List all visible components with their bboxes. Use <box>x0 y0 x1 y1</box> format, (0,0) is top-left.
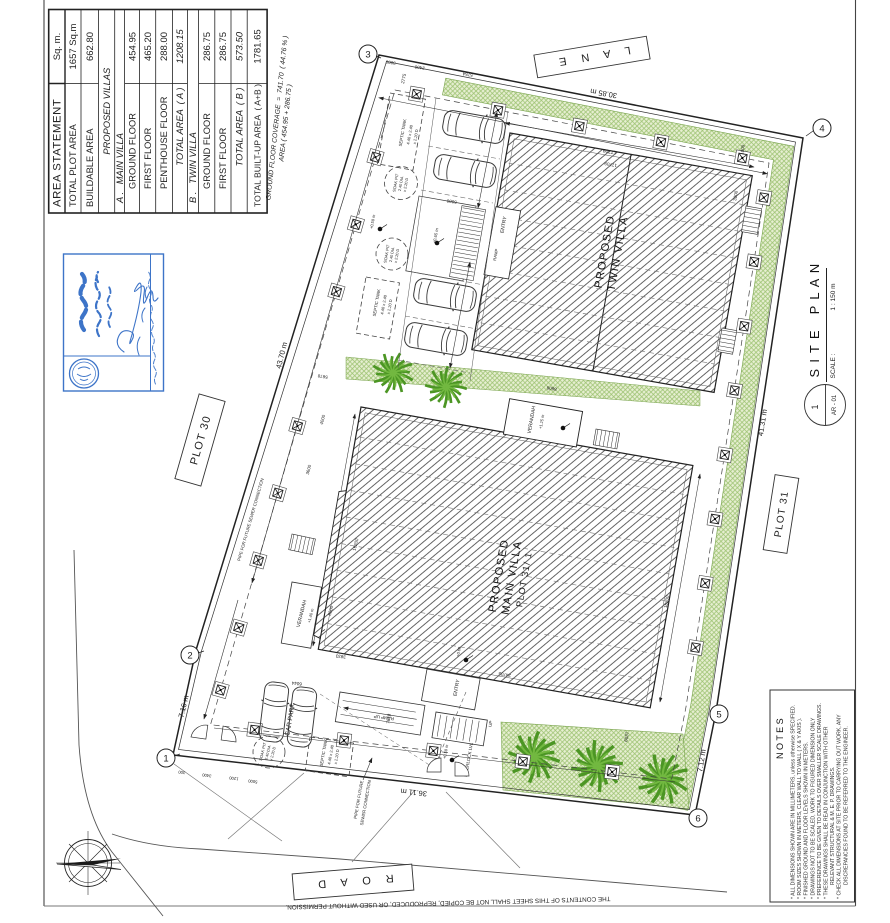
svg-text:A . MAIN VILLA: A . MAIN VILLA <box>115 133 125 204</box>
svg-text:B . TWIN VILLA: B . TWIN VILLA <box>188 132 198 203</box>
svg-text:FIRST FLOOR: FIRST FLOOR <box>218 127 228 189</box>
svg-text:TOTAL BUILT-UP AREA ( A+B ): TOTAL BUILT-UP AREA ( A+B ) <box>252 84 262 207</box>
svg-text:3: 3 <box>365 50 370 61</box>
svg-text:PENTHOUSE FLOOR: PENTHOUSE FLOOR <box>159 96 169 189</box>
svg-text:300: 300 <box>177 770 185 776</box>
svg-text:1208.15: 1208.15 <box>175 29 186 64</box>
svg-text:1781.65: 1781.65 <box>252 29 263 63</box>
svg-text:1 : 150 m: 1 : 150 m <box>830 283 837 310</box>
svg-text:286.75: 286.75 <box>202 32 213 61</box>
svg-text:662.80: 662.80 <box>85 32 96 61</box>
svg-text:SCALE :: SCALE : <box>830 353 837 378</box>
svg-text:288.00: 288.00 <box>159 32 170 61</box>
svg-text:* CHECK ALL DIMENSIONS AT SITE: * CHECK ALL DIMENSIONS AT SITE PRIOR TO … <box>837 714 843 899</box>
svg-text:5: 5 <box>716 710 721 721</box>
svg-text:2: 2 <box>187 651 192 662</box>
svg-text:* ALL DIMENSIONS SHOWN ARE IN: * ALL DIMENSIONS SHOWN ARE IN MILLIMETER… <box>791 705 797 899</box>
svg-text:* THESE DRAWINGS SHALL BE READ: * THESE DRAWINGS SHALL BE READ IN CONJUN… <box>824 726 830 899</box>
svg-text:1: 1 <box>810 404 820 409</box>
svg-text:DISCREPANCIES FOUND TO BE REFE: DISCREPANCIES FOUND TO BE REFERRED TO TH… <box>843 726 849 885</box>
svg-text:* ROOM SIZES SHOWN IN METERS,: * ROOM SIZES SHOWN IN METERS, CLEAR WALL… <box>797 718 803 899</box>
svg-text:PROPOSED VILLAS: PROPOSED VILLAS <box>102 67 112 155</box>
svg-text:454.95: 454.95 <box>127 32 138 61</box>
svg-text:FIRST FLOOR: FIRST FLOOR <box>143 127 153 189</box>
svg-text:* FINISHED GROUND AND FLOOR LE: * FINISHED GROUND AND FLOOR LEVELS SHOWN… <box>804 742 810 899</box>
svg-text:TOTAL PLOT AREA: TOTAL PLOT AREA <box>68 123 78 207</box>
svg-text:GROUND FLOOR: GROUND FLOOR <box>127 113 137 189</box>
svg-text:AREA STATEMENT: AREA STATEMENT <box>52 99 64 207</box>
svg-text:* DRAWINGS NOT TO BE SCALED, W: * DRAWINGS NOT TO BE SCALED, WORK TO FIG… <box>810 717 816 899</box>
svg-text:1657 Sq.m: 1657 Sq.m <box>68 23 79 69</box>
svg-text:465.20: 465.20 <box>143 32 154 61</box>
svg-text:4: 4 <box>819 124 824 135</box>
svg-text:Sq. m.: Sq. m. <box>52 33 63 60</box>
svg-text:TOTAL AREA ( A ): TOTAL AREA ( A ) <box>175 88 185 166</box>
svg-text:286.75: 286.75 <box>218 32 229 61</box>
svg-text:6: 6 <box>695 814 700 825</box>
svg-text:BUILDABLE AREA: BUILDABLE AREA <box>85 128 95 207</box>
svg-text:RELEVANT STRUCTURAL & M. E. P.: RELEVANT STRUCTURAL & M. E. P. DRAWINGS. <box>830 767 836 885</box>
svg-text:GROUND FLOOR: GROUND FLOOR <box>202 113 212 189</box>
svg-text:N O T E S: N O T E S <box>775 718 785 759</box>
svg-text:AR - 01: AR - 01 <box>832 394 838 415</box>
svg-text:TOTAL AREA ( B ): TOTAL AREA ( B ) <box>234 88 244 167</box>
svg-text:S I T E P L A N: S I T E P L A N <box>807 262 822 377</box>
svg-text:573.50: 573.50 <box>234 31 245 61</box>
svg-text:* PREFERENCE TO BE GIVEN TO DE: * PREFERENCE TO BE GIVEN TO DETAILS OVER… <box>817 703 823 899</box>
svg-text:1: 1 <box>163 754 168 765</box>
